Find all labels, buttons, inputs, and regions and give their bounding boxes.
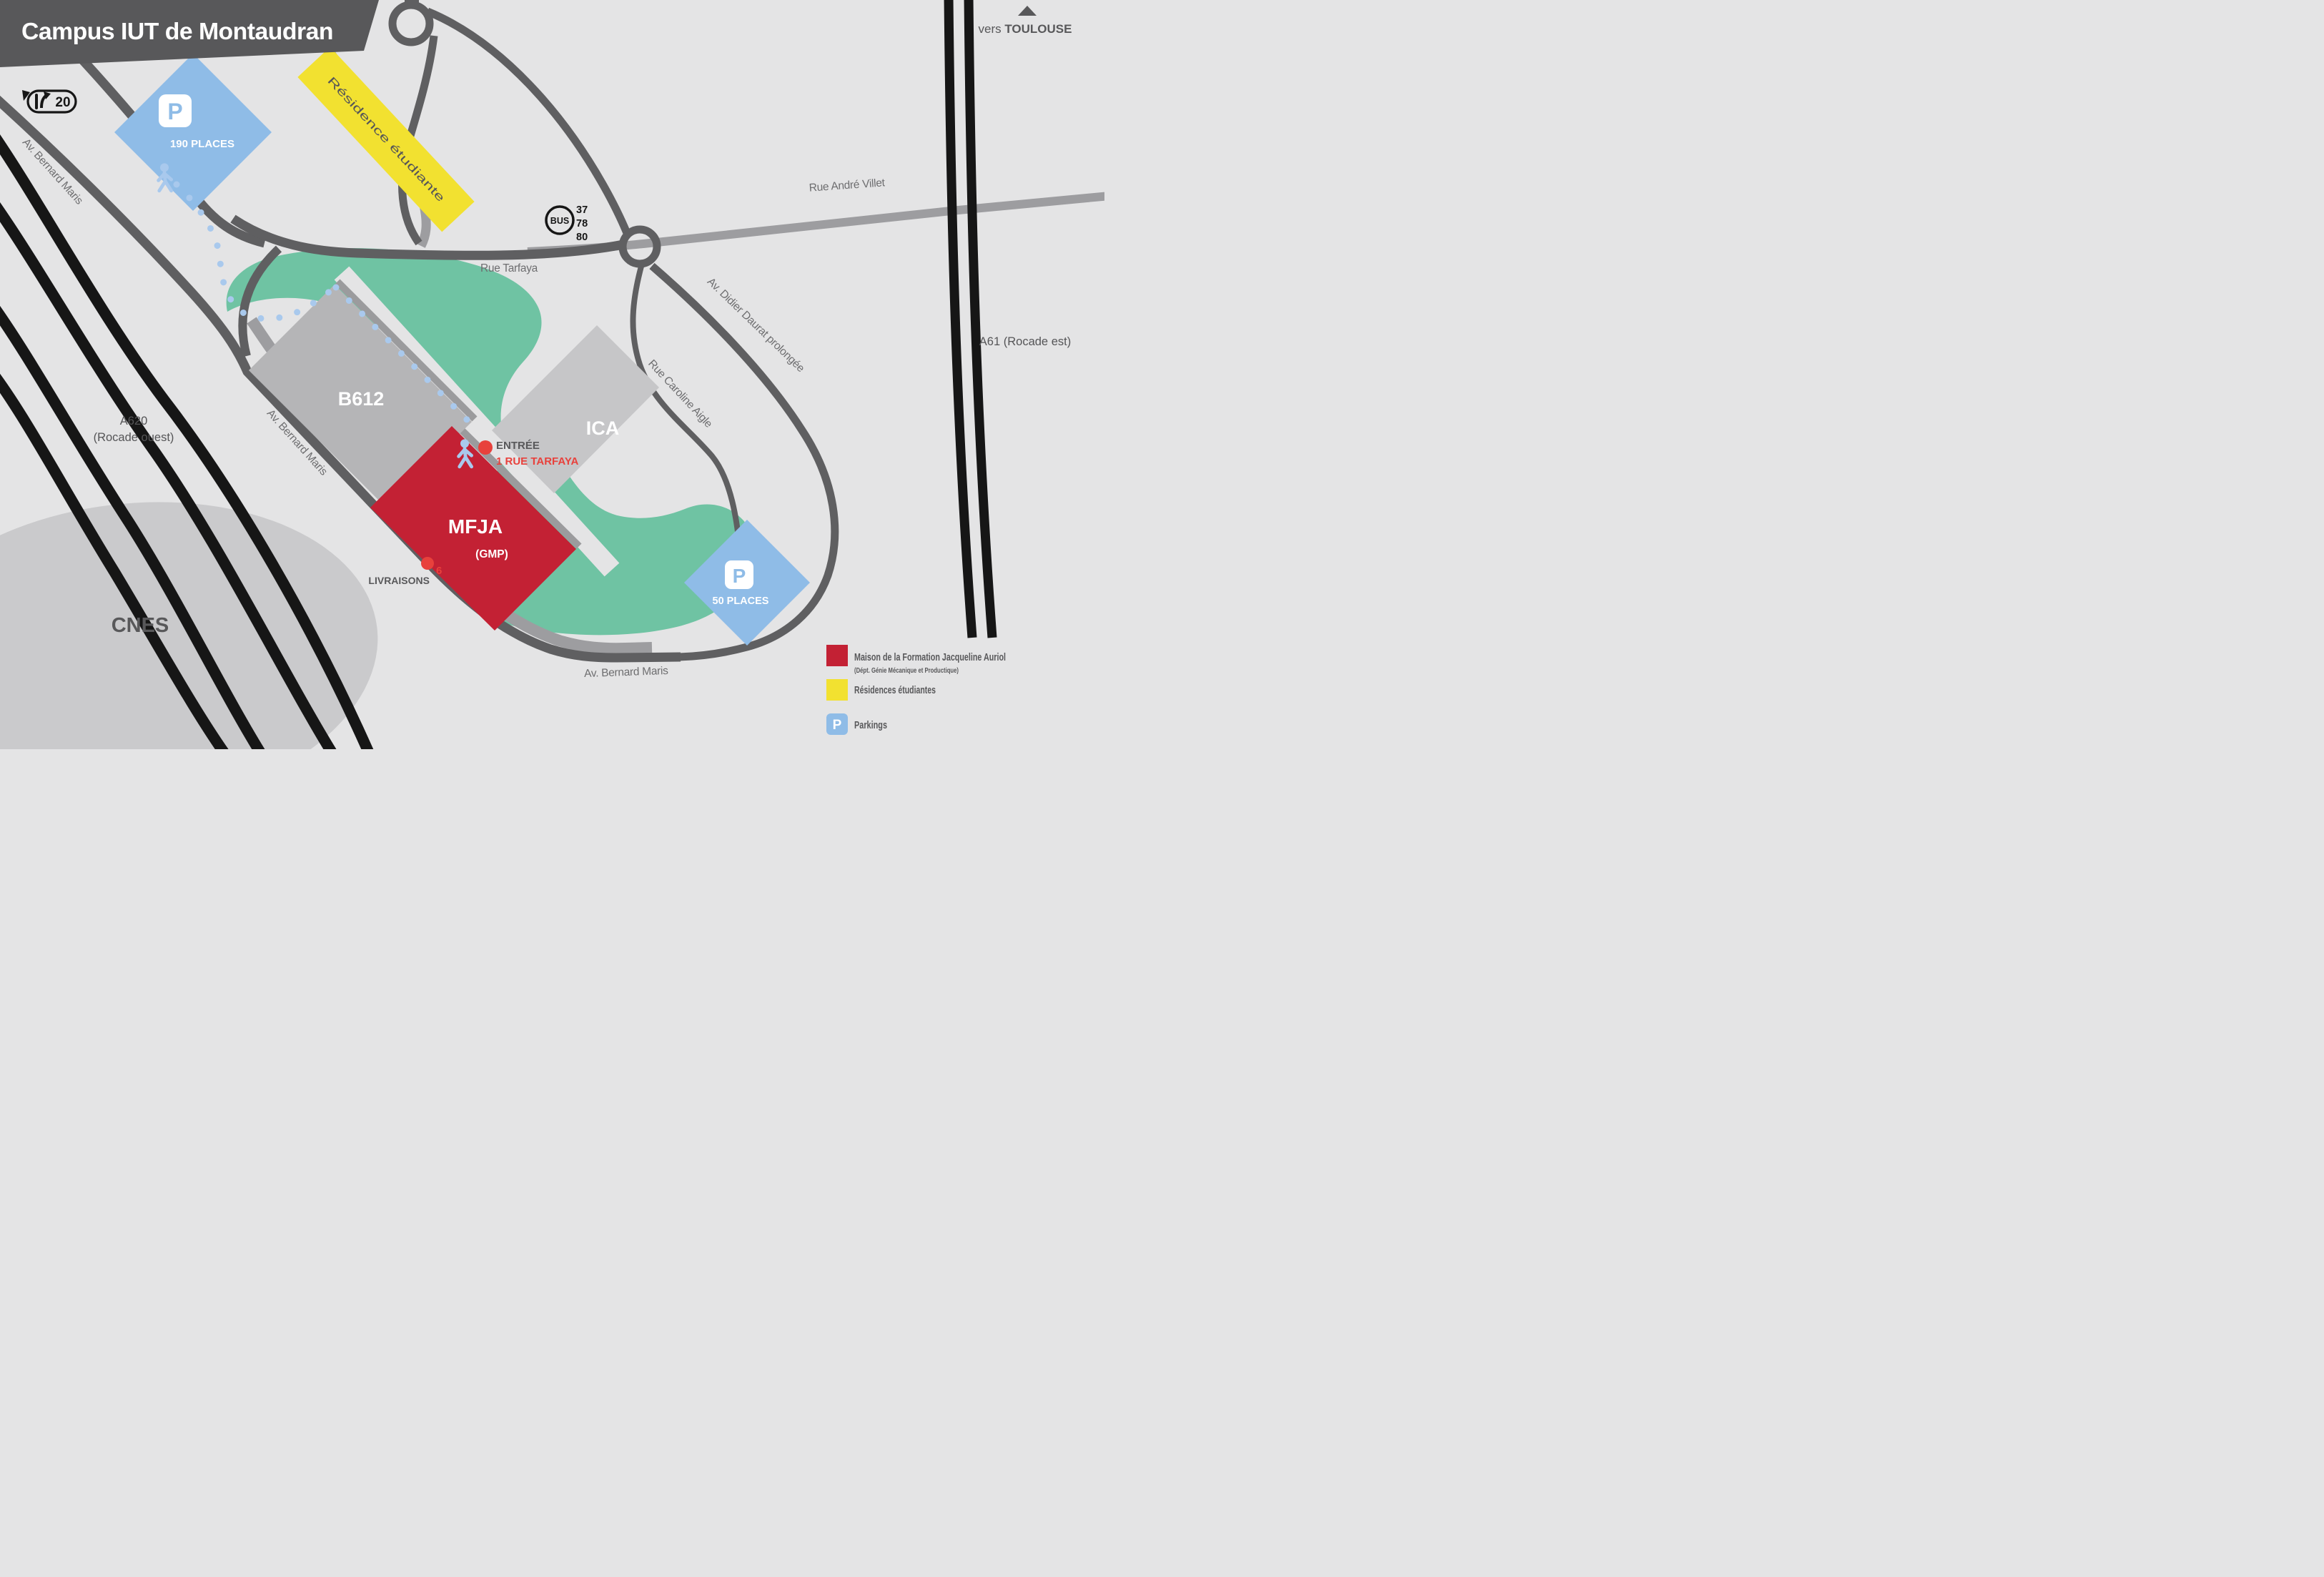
legend-label-mfja-sub: (Dépt. Génie Mécanique et Productique) xyxy=(854,666,959,675)
bus-line-37: 37 xyxy=(576,204,588,216)
building-label-mfja-dept: (GMP) xyxy=(475,548,508,560)
legend-p-letter: P xyxy=(833,718,842,733)
entrance-dot xyxy=(478,440,493,455)
legend-label-parking: Parkings xyxy=(854,720,887,731)
exit-number: 20 xyxy=(55,95,70,110)
street-label-tarfaya: Rue Tarfaya xyxy=(480,262,538,275)
legend-label-mfja: Maison de la Formation Jacqueline Auriol xyxy=(854,652,1006,663)
deliveries-label: LIVRAISONS xyxy=(368,575,430,586)
building-label-mfja: MFJA xyxy=(448,515,503,538)
highway-label-a620: A620 xyxy=(120,415,148,427)
exit-20-badge: 20 xyxy=(22,90,76,112)
building-label-b612: B612 xyxy=(338,388,385,410)
bus-line-78: 78 xyxy=(576,218,588,229)
parking-north-capacity: 190 PLACES xyxy=(170,138,234,150)
parking-south-capacity: 50 PLACES xyxy=(713,595,769,607)
direction-city: TOULOUSE xyxy=(1004,22,1072,36)
bus-line-80: 80 xyxy=(576,232,588,243)
parking-p-letter: P xyxy=(167,99,182,124)
deliveries-dot xyxy=(421,557,434,570)
highway-label-a620-sub: (Rocade ouest) xyxy=(94,431,174,444)
building-label-ica: ICA xyxy=(586,417,620,439)
direction-prefix: vers xyxy=(979,22,1005,36)
building-label-cnes: CNES xyxy=(112,614,169,637)
direction-toulouse-label: vers TOULOUSE xyxy=(979,22,1072,36)
campus-map-canvas: P 190 PLACES P 50 PLACES Résidence étudi… xyxy=(0,0,1104,749)
highway-label-a61: A61 (Rocade est) xyxy=(979,335,1071,348)
entrance-address: 1 RUE TARFAYA xyxy=(496,455,578,468)
bus-label: BUS xyxy=(550,216,569,226)
parking-p-letter: P xyxy=(733,565,746,587)
legend-swatch-mfja xyxy=(826,645,848,666)
page-title: Campus IUT de Montaudran xyxy=(21,18,333,44)
deliveries-gate-number: 6 xyxy=(436,565,442,577)
campus-map: P 190 PLACES P 50 PLACES Résidence étudi… xyxy=(0,0,1104,749)
entrance-label: ENTRÉE xyxy=(496,440,540,452)
legend-label-residence: Résidences étudiantes xyxy=(854,685,936,696)
legend-swatch-residence xyxy=(826,679,848,701)
